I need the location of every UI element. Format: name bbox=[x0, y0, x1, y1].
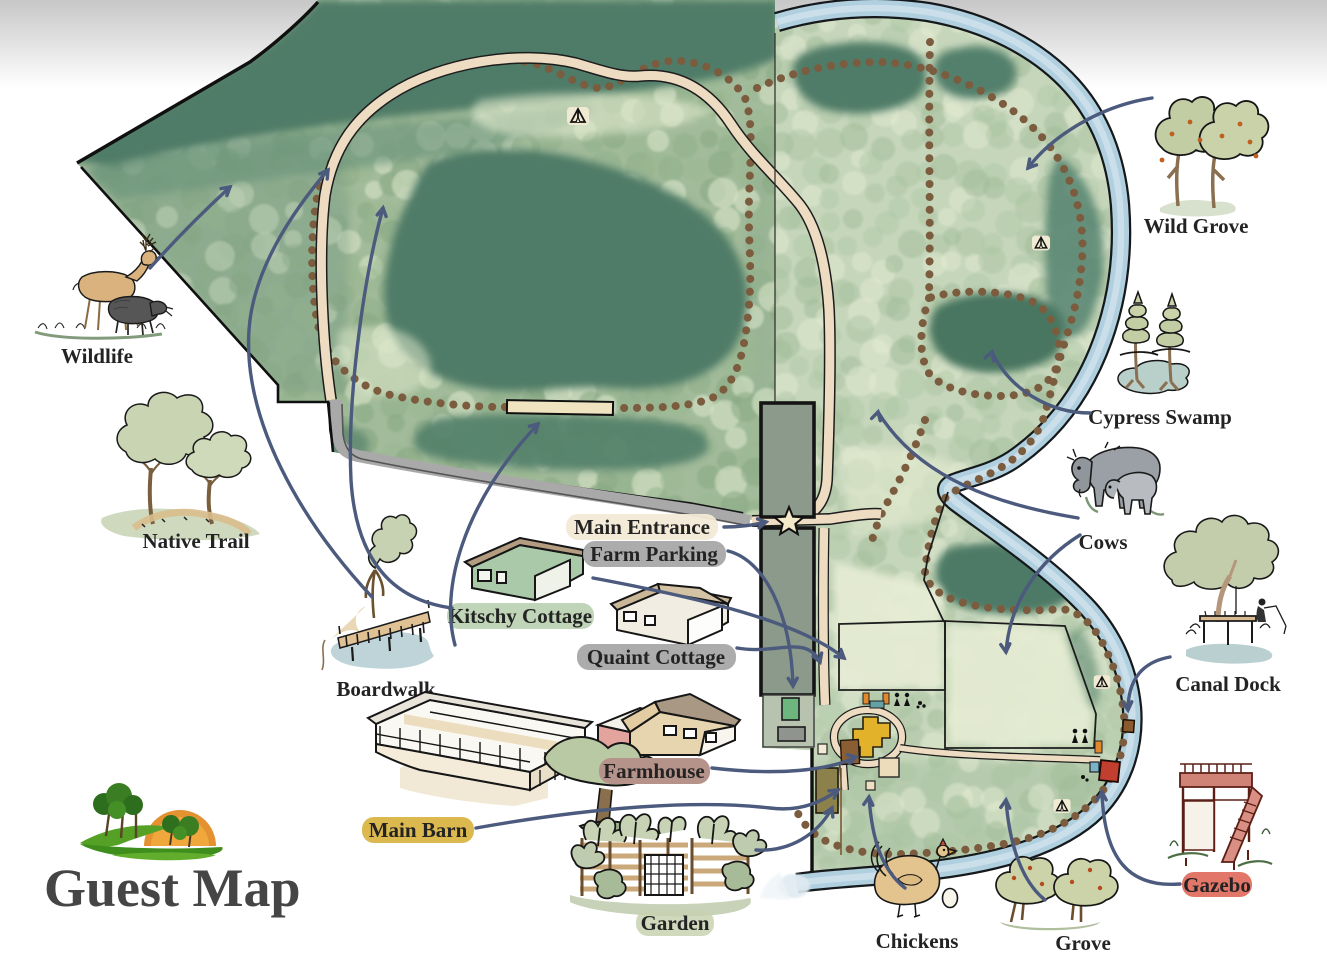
svg-text:Chickens: Chickens bbox=[876, 929, 959, 953]
svg-text:Gazebo: Gazebo bbox=[1183, 873, 1251, 897]
svg-text:Farm Parking: Farm Parking bbox=[590, 542, 718, 566]
svg-text:Wildlife: Wildlife bbox=[61, 344, 133, 368]
svg-text:Main Barn: Main Barn bbox=[369, 818, 468, 842]
svg-text:Grove: Grove bbox=[1055, 931, 1111, 955]
svg-text:Garden: Garden bbox=[641, 911, 710, 935]
svg-text:Farmhouse: Farmhouse bbox=[603, 759, 705, 783]
svg-text:Wild Grove: Wild Grove bbox=[1144, 214, 1249, 238]
svg-text:Main Entrance: Main Entrance bbox=[574, 515, 710, 539]
svg-text:Cows: Cows bbox=[1078, 530, 1127, 554]
svg-text:Guest Map: Guest Map bbox=[44, 858, 301, 918]
svg-text:Quaint Cottage: Quaint Cottage bbox=[587, 645, 725, 669]
svg-text:Kitschy Cottage: Kitschy Cottage bbox=[448, 604, 592, 628]
svg-text:Cypress Swamp: Cypress Swamp bbox=[1088, 405, 1232, 429]
svg-text:Canal Dock: Canal Dock bbox=[1175, 672, 1281, 696]
svg-text:Native Trail: Native Trail bbox=[142, 529, 249, 553]
